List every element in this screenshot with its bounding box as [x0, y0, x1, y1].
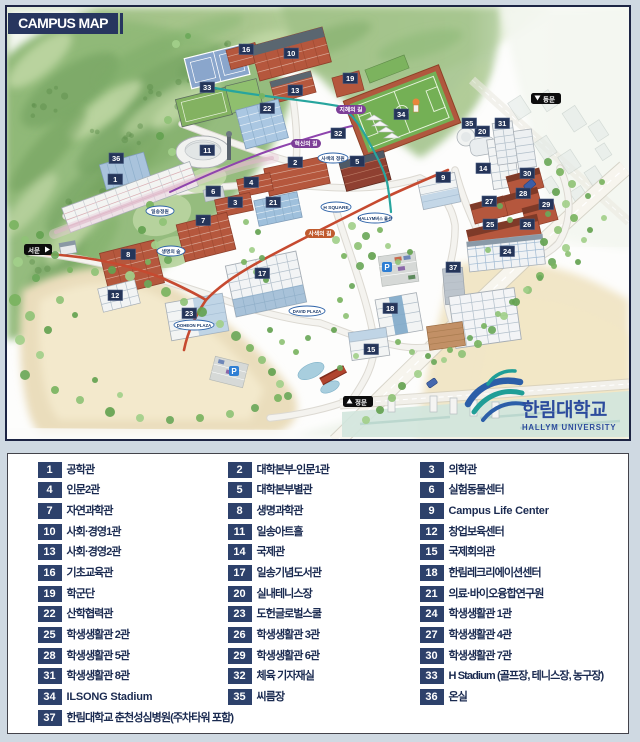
svg-text:9: 9 — [441, 173, 445, 182]
svg-text:35: 35 — [465, 119, 473, 128]
svg-text:34: 34 — [397, 110, 406, 119]
svg-text:H SQUARE: H SQUARE — [323, 205, 349, 211]
svg-text:8: 8 — [126, 250, 130, 259]
svg-text:14: 14 — [479, 164, 488, 173]
svg-text:28: 28 — [519, 189, 527, 198]
svg-text:DOHEON PLAZA: DOHEON PLAZA — [177, 323, 211, 328]
svg-text:7: 7 — [201, 216, 205, 225]
svg-text:22: 22 — [263, 104, 271, 113]
svg-text:33: 33 — [203, 83, 211, 92]
svg-text:P: P — [384, 263, 390, 272]
svg-text:24: 24 — [503, 247, 512, 256]
svg-text:6: 6 — [211, 187, 215, 196]
svg-text:30: 30 — [523, 169, 531, 178]
svg-text:17: 17 — [258, 269, 266, 278]
svg-text:12: 12 — [111, 291, 119, 300]
svg-text:동문: 동문 — [543, 96, 555, 104]
svg-text:37: 37 — [449, 263, 457, 272]
svg-text:18: 18 — [386, 304, 394, 313]
svg-text:13: 13 — [291, 86, 299, 95]
svg-text:혁신의 길: 혁신의 길 — [295, 139, 318, 147]
svg-text:지혜의 길: 지혜의 길 — [340, 105, 363, 113]
svg-text:생명의 숲: 생명의 숲 — [162, 248, 182, 255]
svg-text:10: 10 — [287, 49, 295, 58]
svg-text:2: 2 — [293, 158, 297, 167]
svg-text:HALLYM버스 출선: HALLYM버스 출선 — [358, 215, 392, 222]
svg-text:한림대학교: 한림대학교 — [522, 399, 607, 421]
svg-text:15: 15 — [367, 345, 375, 354]
svg-text:26: 26 — [523, 220, 531, 229]
svg-text:20: 20 — [478, 127, 486, 136]
svg-text:29: 29 — [542, 200, 550, 209]
svg-text:정문: 정문 — [355, 398, 367, 407]
svg-text:서문: 서문 — [28, 246, 40, 255]
svg-text:일송정원: 일송정원 — [151, 208, 169, 215]
svg-text:사색의 정원: 사색의 정원 — [321, 155, 344, 162]
svg-text:11: 11 — [203, 146, 211, 155]
svg-text:19: 19 — [346, 74, 354, 83]
svg-text:DAVID PLAZA: DAVID PLAZA — [293, 309, 322, 314]
svg-text:32: 32 — [334, 129, 342, 138]
svg-text:23: 23 — [185, 309, 193, 318]
svg-text:25: 25 — [486, 220, 494, 229]
svg-text:사색의 길: 사색의 길 — [309, 229, 332, 237]
svg-text:1: 1 — [113, 175, 117, 184]
svg-text:HALLYM UNIVERSITY: HALLYM UNIVERSITY — [522, 423, 616, 432]
svg-text:P: P — [231, 367, 237, 376]
svg-text:21: 21 — [269, 198, 277, 207]
svg-text:27: 27 — [485, 197, 493, 206]
svg-text:16: 16 — [242, 45, 250, 54]
svg-text:31: 31 — [498, 119, 506, 128]
svg-text:5: 5 — [355, 157, 359, 166]
svg-text:36: 36 — [112, 154, 120, 163]
svg-text:3: 3 — [233, 198, 237, 207]
